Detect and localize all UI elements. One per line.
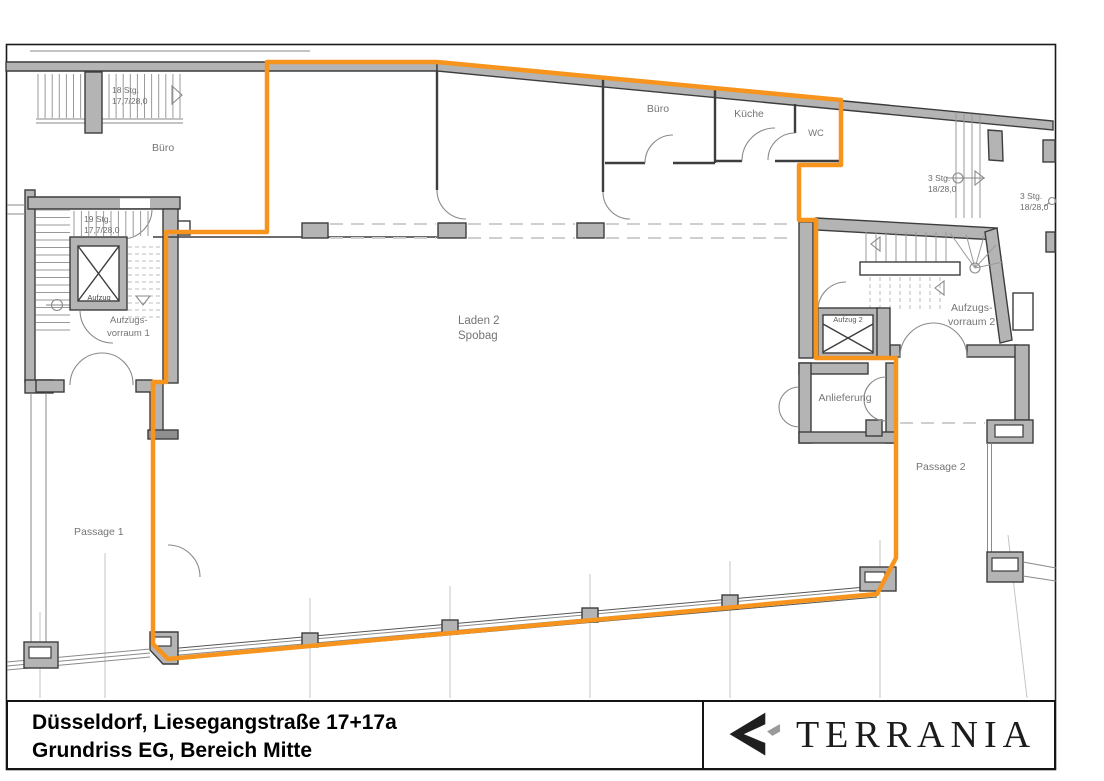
middle-column-row: [153, 221, 795, 238]
laden-north-partitions: [437, 71, 630, 219]
terrania-logo-icon: [722, 710, 780, 760]
room-vorraum1-1: Aufzugs-: [110, 315, 148, 326]
west-neighbour-wall: [7, 190, 53, 650]
stair3b-label-1: 3 Stg.: [1020, 191, 1042, 201]
room-laden2-2: Spobag: [458, 330, 498, 342]
stairwell-1: Aufzug 19 Stg. 17,7/28,0 Aufzugs- vorrau…: [28, 197, 180, 439]
elevator1-label: Aufzug: [87, 293, 110, 302]
company-logo: TERRANIA: [704, 702, 1054, 768]
company-name: TERRANIA: [796, 716, 1036, 754]
anlieferung-room: Anlieferung: [779, 363, 896, 443]
room-kueche: Küche: [734, 108, 764, 120]
room-wc: WC: [808, 128, 824, 139]
floorplan-sheet: 18 Stg. 17,7/28,0 Büro Aufzug 19 Stg.: [0, 0, 1104, 781]
laden2-highlight-outline: [153, 62, 896, 659]
stair18-label-2: 17,7/28,0: [112, 96, 148, 106]
floorplan-drawing: 18 Stg. 17,7/28,0 Büro Aufzug 19 Stg.: [0, 0, 1104, 781]
staircase-18stg: 18 Stg. 17,7/28,0: [36, 72, 183, 133]
stair3b-label-2: 18/28,0: [1020, 202, 1049, 212]
room-vorraum2-2: vorraum 2: [948, 316, 995, 328]
east-wall-passage2: Passage 2: [900, 293, 1056, 582]
room-vorraum1-2: vorraum 1: [107, 328, 150, 339]
title-block: Düsseldorf, Liesegangstraße 17+17a Grund…: [6, 700, 1056, 770]
room-laden2-1: Laden 2: [458, 315, 500, 327]
project-title: Düsseldorf, Liesegangstraße 17+17a: [32, 709, 702, 737]
elevator-2: Aufzug 2: [818, 308, 890, 357]
south-facade: [7, 545, 896, 670]
room-buero-left: Büro: [152, 142, 174, 154]
room-vorraum2-1: Aufzugs-: [951, 302, 993, 314]
stair3a-label-2: 18/28,0: [928, 184, 957, 194]
room-passage1: Passage 1: [74, 526, 124, 538]
room-passage2: Passage 2: [916, 461, 966, 473]
drawing-title: Grundriss EG, Bereich Mitte: [32, 737, 702, 765]
stair3a-label-1: 3 Stg.: [928, 173, 950, 183]
stair18-label-1: 18 Stg.: [112, 85, 139, 95]
room-anlieferung: Anlieferung: [818, 392, 871, 404]
room-buero-top: Büro: [647, 103, 669, 115]
elevator2-label: Aufzug 2: [833, 315, 863, 324]
title-block-text: Düsseldorf, Liesegangstraße 17+17a Grund…: [8, 702, 704, 768]
stair19-label-1: 19 Stg.: [84, 214, 111, 224]
stair19-label-2: 17,7/28,0: [84, 225, 120, 235]
